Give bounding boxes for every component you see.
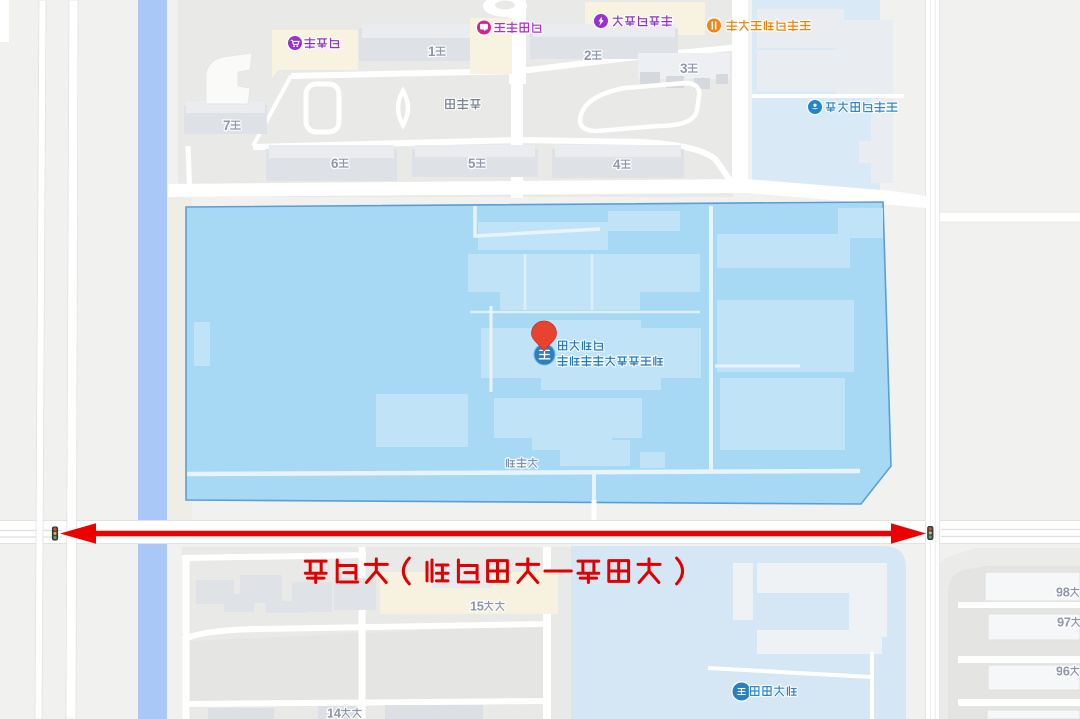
svg-text:7: 7 <box>1064 615 1071 630</box>
svg-text:5: 5 <box>468 156 476 171</box>
svg-text:3: 3 <box>680 61 687 76</box>
svg-text:4: 4 <box>613 157 621 172</box>
svg-text:8: 8 <box>1063 585 1070 600</box>
svg-text:6: 6 <box>331 156 338 171</box>
svg-text:2: 2 <box>584 48 591 63</box>
svg-text:6: 6 <box>1063 664 1070 679</box>
svg-text:4: 4 <box>334 706 342 719</box>
svg-text:1: 1 <box>428 44 436 59</box>
svg-text:5: 5 <box>477 599 484 614</box>
svg-text:7: 7 <box>223 118 230 133</box>
